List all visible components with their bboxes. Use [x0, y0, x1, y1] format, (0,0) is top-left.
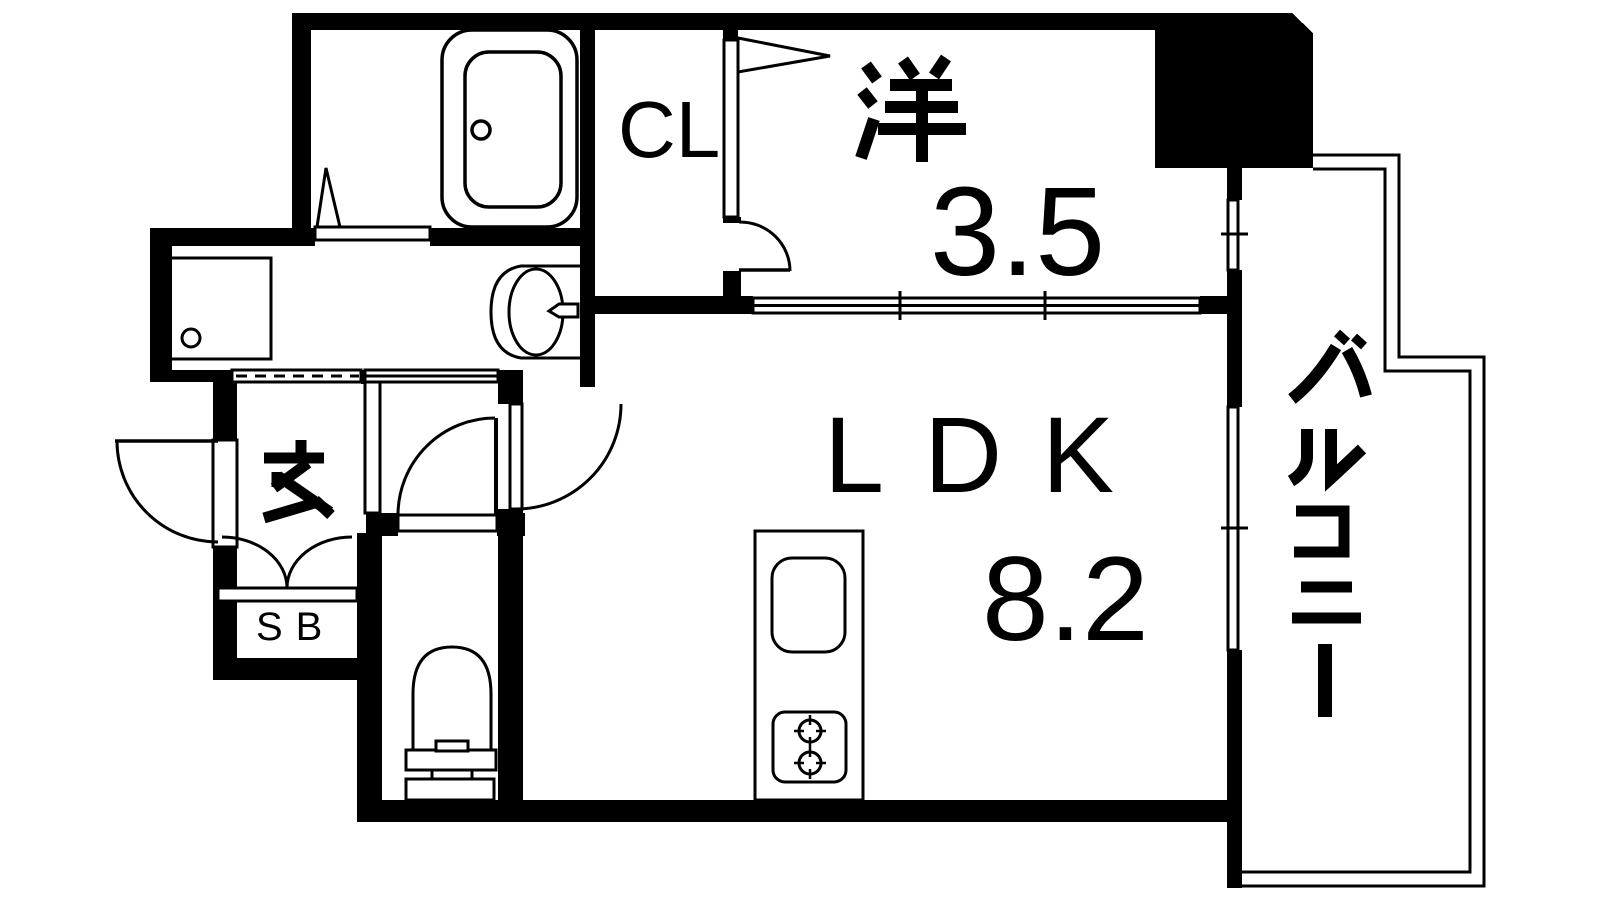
- wall-toilet-east: [498, 509, 523, 800]
- entrance-label: 玄: [255, 432, 345, 522]
- windows: [1221, 200, 1248, 650]
- bath-door-sill: [315, 227, 430, 240]
- ldk-door-arc: [516, 404, 621, 509]
- wall-cl-door-block: [723, 271, 741, 296]
- floor-plan: CL 3.5 LDK 8.2 SB 洋 玄 バルコニー: [0, 0, 1600, 900]
- shoe-box-label: SB: [256, 607, 335, 647]
- bathtub: [442, 30, 577, 227]
- wall-corner-pillar: [1155, 13, 1313, 168]
- wall-ldk-nw-block: [498, 370, 523, 404]
- closet-small-door-arc: [739, 222, 790, 271]
- wall-sb-bottom: [213, 658, 382, 680]
- wall-entry-west-top: [213, 382, 237, 440]
- wall-right-3: [1227, 650, 1242, 888]
- washing-machine-pan: [170, 258, 271, 359]
- wall-wash-west: [150, 228, 172, 382]
- wall-toilet-north-left: [366, 513, 398, 536]
- ldk-door-leaf: [510, 404, 522, 509]
- western-room-size: 3.5: [930, 169, 1105, 295]
- closet-label: CL: [618, 87, 702, 173]
- wall-cl-south: [593, 296, 753, 314]
- wall-right-1: [1227, 168, 1242, 200]
- closet-door-flag: [738, 38, 830, 72]
- wall-top: [292, 13, 1155, 30]
- shoe-box-door-right: [287, 537, 352, 588]
- kitchen-sink: [772, 558, 845, 652]
- front-door-arc: [117, 441, 218, 542]
- kitchen-unit: [755, 531, 863, 800]
- wall-partition-end: [1200, 296, 1227, 314]
- wall-bath-left: [292, 13, 311, 246]
- ldk-label: LDK: [824, 401, 1154, 509]
- wall-bottom: [357, 800, 1242, 822]
- toilet-door-arc: [398, 418, 495, 515]
- ldk-size: 8.2: [982, 539, 1149, 659]
- wall-wash-top-left: [150, 228, 315, 246]
- toilet: [406, 647, 496, 800]
- hall-partition: [365, 382, 380, 513]
- bath-door-mark: [317, 168, 340, 227]
- front-door-opening: [213, 440, 237, 547]
- wall-right-2: [1227, 270, 1242, 407]
- shoe-box-front: [218, 588, 357, 601]
- wall-bath-cl: [580, 13, 595, 387]
- toilet-door-opening: [398, 515, 497, 531]
- wall-wash-south-left: [150, 370, 232, 382]
- western-room-label: 洋: [856, 52, 968, 164]
- wash-basin: [491, 266, 580, 358]
- closet-door-track: [724, 40, 738, 217]
- balcony-label: バルコニー: [1286, 330, 1364, 700]
- wall-cl-door-cap: [723, 28, 738, 40]
- wall-wash-top-right: [430, 228, 595, 246]
